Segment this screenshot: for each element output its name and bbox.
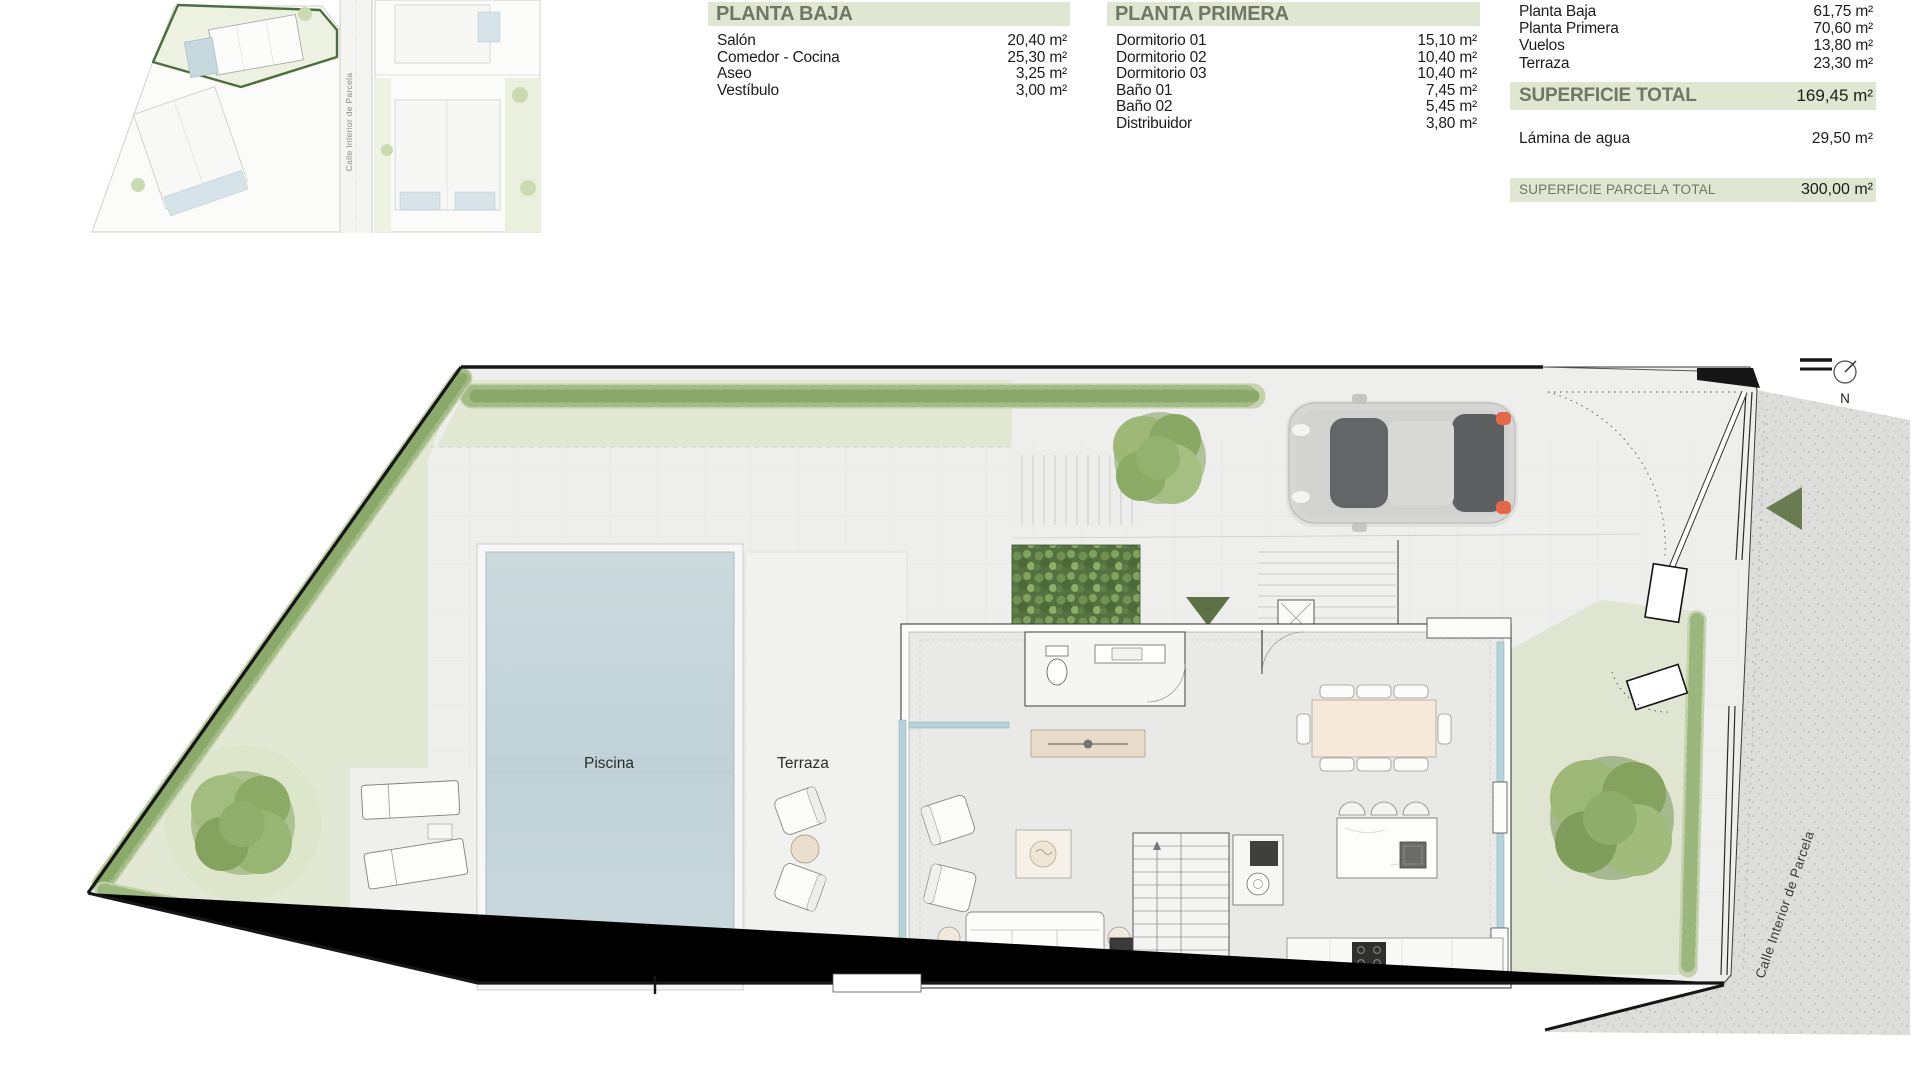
row-value: 7,45 m² [1426, 83, 1477, 100]
planta-baja-title: PLANTA BAJA [716, 3, 853, 25]
kitchen-island [1337, 802, 1437, 878]
row-label: Dormitorio 01 [1116, 33, 1206, 50]
pool-label: Piscina [584, 755, 634, 772]
table-row: Comedor - Cocina 25,30 m² [708, 50, 1070, 67]
row-label: Dormitorio 02 [1116, 50, 1206, 67]
row-label: Planta Primera [1519, 20, 1619, 37]
row-value: 5,45 m² [1426, 99, 1477, 116]
tv-console [1031, 730, 1145, 757]
row-label: Baño 01 [1116, 83, 1172, 100]
site-plan-vignette: Calle Interior de Parcela [92, 0, 540, 233]
row-label: Baño 02 [1116, 99, 1172, 116]
row-value: 61,75 m² [1813, 3, 1873, 20]
table-row: Aseo 3,25 m² [708, 66, 1070, 83]
table-row: Terraza 23,30 m² [1510, 55, 1876, 72]
vignette-street-label: Calle Interior de Parcela [344, 73, 354, 172]
north-indicator: N [1834, 361, 1856, 406]
row-label: Vuelos [1519, 37, 1565, 54]
table-row: Dormitorio 03 10,40 m² [1107, 66, 1480, 83]
table-row: Vuelos 13,80 m² [1510, 37, 1876, 54]
house [899, 618, 1511, 988]
toilet-icon [1047, 659, 1067, 685]
row-value: 13,80 m² [1813, 37, 1873, 54]
table-row: Salón 20,40 m² [708, 33, 1070, 50]
tree [191, 771, 295, 875]
tree [1113, 412, 1206, 504]
row-label: Terraza [1519, 55, 1569, 72]
vertical-garden-planter [1012, 545, 1140, 633]
row-value: 10,40 m² [1417, 50, 1477, 67]
terrace-label: Terraza [777, 755, 829, 772]
bathroom [1025, 632, 1185, 706]
planta-primera-title: PLANTA PRIMERA [1115, 3, 1289, 25]
superficie-total-band: SUPERFICIE TOTAL 169,45 m² [1510, 82, 1876, 110]
planta-baja-table: PLANTA BAJA Salón 20,40 m² Comedor - Coc… [708, 0, 1070, 99]
row-value: 25,30 m² [1007, 50, 1067, 67]
dining-table [1312, 700, 1436, 757]
row-label: Aseo [717, 66, 752, 83]
row-label: Distribuidor [1116, 116, 1192, 133]
parcel-total-band: SUPERFICIE PARCELA TOTAL 300,00 m² [1510, 178, 1876, 202]
table-row: Dormitorio 01 15,10 m² [1107, 33, 1480, 50]
pantry-wc [1233, 835, 1283, 905]
table-row: Planta Baja 61,75 m² [1510, 3, 1876, 20]
row-label: Dormitorio 03 [1116, 66, 1206, 83]
row-label: Comedor - Cocina [717, 50, 840, 67]
row-value: 29,50 m² [1812, 130, 1873, 148]
table-row: Distribuidor 3,80 m² [1107, 116, 1480, 133]
row-value: 10,40 m² [1417, 66, 1477, 83]
row-value: 70,60 m² [1813, 20, 1873, 37]
total-value: 169,45 m² [1796, 86, 1873, 106]
parcel-total-label: SUPERFICIE PARCELA TOTAL [1519, 182, 1716, 197]
planta-primera-header: PLANTA PRIMERA [1107, 2, 1480, 26]
coffee-table [1016, 830, 1071, 878]
total-label: SUPERFICIE TOTAL [1519, 85, 1697, 107]
table-row: Baño 01 7,45 m² [1107, 83, 1480, 100]
vignette-right-block [375, 0, 540, 232]
row-label: Lámina de agua [1519, 130, 1630, 148]
table-row: Dormitorio 02 10,40 m² [1107, 50, 1480, 67]
car [1286, 394, 1518, 532]
row-value: 20,40 m² [1007, 33, 1067, 50]
table-row: Baño 02 5,45 m² [1107, 99, 1480, 116]
water-sheet-row: Lámina de agua 29,50 m² [1510, 130, 1876, 148]
summary-table: Planta Baja 61,75 m² Planta Primera 70,6… [1510, 0, 1876, 202]
row-label: Salón [717, 33, 756, 50]
row-label: Planta Baja [1519, 3, 1596, 20]
row-value: 3,25 m² [1016, 66, 1067, 83]
row-value: 23,30 m² [1813, 55, 1873, 72]
planta-primera-table: PLANTA PRIMERA Dormitorio 01 15,10 m² Do… [1107, 0, 1480, 132]
row-label: Vestíbulo [717, 83, 779, 100]
planta-baja-header: PLANTA BAJA [708, 2, 1070, 26]
table-row: Vestíbulo 3,00 m² [708, 83, 1070, 100]
tree [1550, 756, 1674, 880]
parcel-total-value: 300,00 m² [1801, 181, 1873, 199]
north-label: N [1840, 391, 1850, 406]
row-value: 3,80 m² [1426, 116, 1477, 133]
plan-sheet: Calle Interior de Parcela [0, 0, 1920, 1080]
sink-icon [1112, 648, 1142, 660]
row-value: 15,10 m² [1417, 33, 1477, 50]
table-row: Planta Primera 70,60 m² [1510, 20, 1876, 37]
row-value: 3,00 m² [1016, 83, 1067, 100]
